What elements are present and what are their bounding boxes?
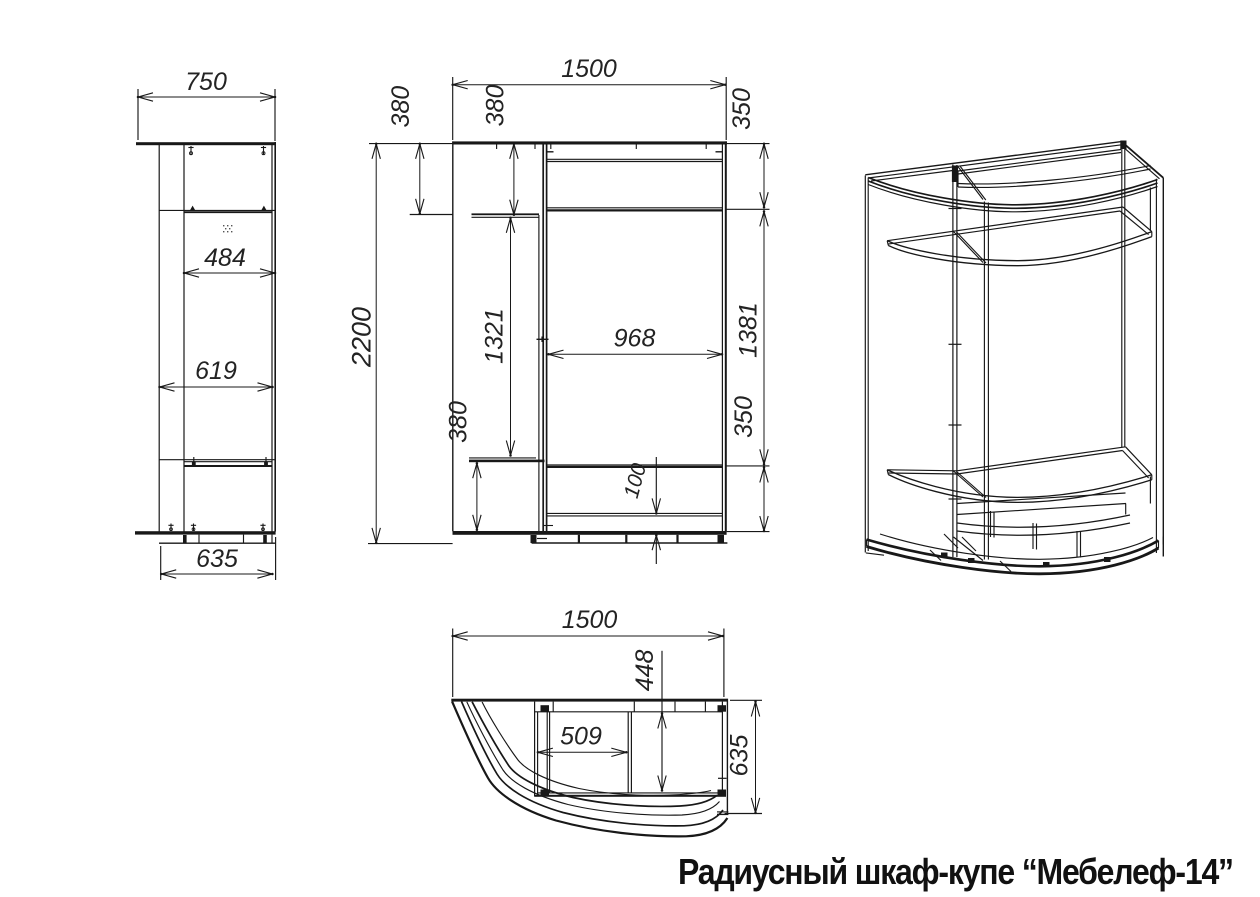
svg-text:1321: 1321 [481, 308, 509, 364]
svg-text:448: 448 [631, 649, 659, 691]
svg-text:750: 750 [185, 68, 227, 96]
svg-text:635: 635 [726, 735, 754, 777]
svg-text:1500: 1500 [562, 606, 618, 634]
svg-text:1500: 1500 [561, 55, 617, 83]
svg-text:619: 619 [195, 357, 237, 385]
svg-text:380: 380 [387, 86, 415, 128]
svg-text:2200: 2200 [347, 307, 377, 368]
svg-text:509: 509 [560, 722, 602, 750]
svg-text:1381: 1381 [735, 302, 763, 358]
svg-text:968: 968 [614, 325, 656, 353]
svg-text:350: 350 [728, 88, 756, 130]
svg-text:484: 484 [204, 244, 246, 272]
svg-text:380: 380 [482, 85, 510, 127]
svg-text:350: 350 [730, 396, 758, 438]
svg-text:635: 635 [196, 545, 238, 573]
svg-text:380: 380 [445, 401, 473, 443]
